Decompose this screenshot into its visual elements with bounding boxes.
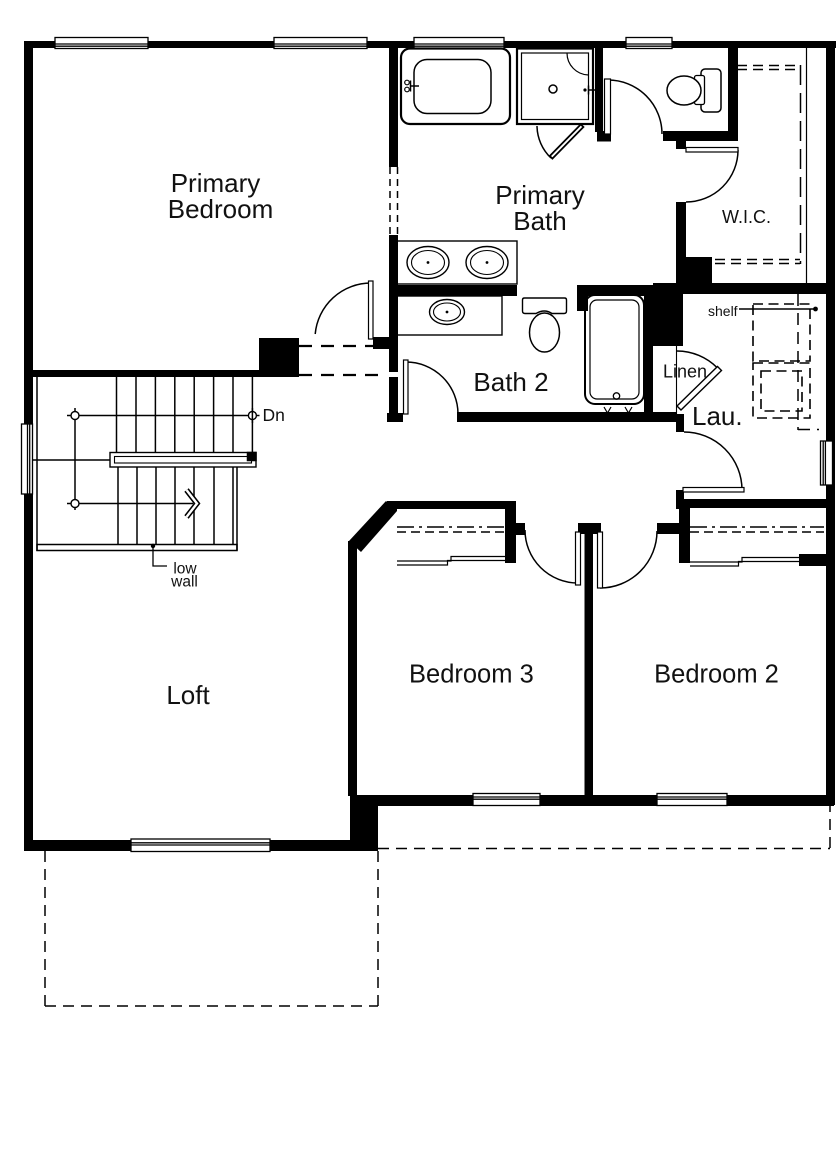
svg-text:Loft: Loft xyxy=(166,680,210,710)
svg-text:Bath 2: Bath 2 xyxy=(473,367,548,397)
svg-text:Lau.: Lau. xyxy=(692,401,743,431)
svg-text:wall: wall xyxy=(170,574,198,591)
svg-text:W.I.C.: W.I.C. xyxy=(722,207,771,227)
svg-text:Bedroom: Bedroom xyxy=(168,194,274,224)
svg-text:Bedroom 2: Bedroom 2 xyxy=(654,661,779,689)
svg-text:shelf: shelf xyxy=(708,303,738,319)
svg-text:Linen: Linen xyxy=(663,362,707,382)
svg-text:Bath: Bath xyxy=(513,206,567,236)
svg-text:Bedroom 3: Bedroom 3 xyxy=(409,661,534,689)
svg-text:Dn: Dn xyxy=(263,405,285,425)
